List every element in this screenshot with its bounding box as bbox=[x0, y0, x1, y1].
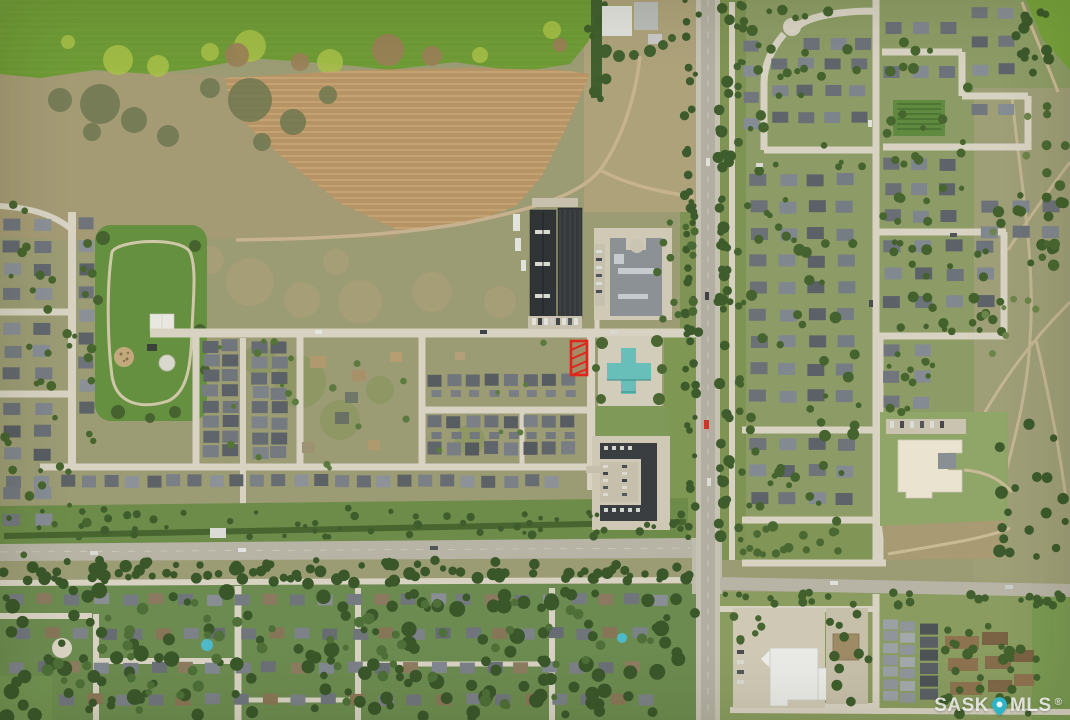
park-shed bbox=[147, 344, 157, 351]
park-ball-diamond bbox=[159, 355, 175, 371]
bottom-right-townhomes-col1 bbox=[883, 619, 898, 700]
right-nbhd-top-row bbox=[804, 38, 872, 50]
sask-mls-watermark: SASK MLS ® bbox=[934, 695, 1062, 717]
mls-pin-icon bbox=[992, 697, 1007, 716]
seniors-courtyard bbox=[630, 239, 644, 253]
aerial-photo bbox=[0, 0, 1070, 720]
school-parking bbox=[886, 419, 966, 434]
shelterbelt-rink-shed bbox=[210, 528, 226, 538]
l-condo-driveway bbox=[586, 466, 600, 473]
condo-parking bbox=[528, 316, 582, 329]
watermark-sask-text: SASK bbox=[934, 695, 989, 717]
school-south-dirt bbox=[882, 520, 1006, 560]
school-dark-roof-section bbox=[938, 453, 956, 469]
townhouse-strips-left-dev-4 bbox=[270, 342, 288, 459]
mls-pin-center bbox=[997, 701, 1003, 707]
bottom-right-townhomes-col2 bbox=[900, 621, 915, 702]
park-playground bbox=[114, 347, 134, 367]
church-lawn bbox=[596, 406, 668, 436]
right-nbhd-ne-block-houses bbox=[886, 22, 957, 34]
mls-map-screenshot: SASK MLS ® bbox=[0, 0, 1070, 720]
watermark-registered-symbol: ® bbox=[1055, 697, 1062, 708]
condo-north-drive bbox=[532, 198, 578, 207]
watermark-mls-text: MLS bbox=[1010, 695, 1052, 717]
